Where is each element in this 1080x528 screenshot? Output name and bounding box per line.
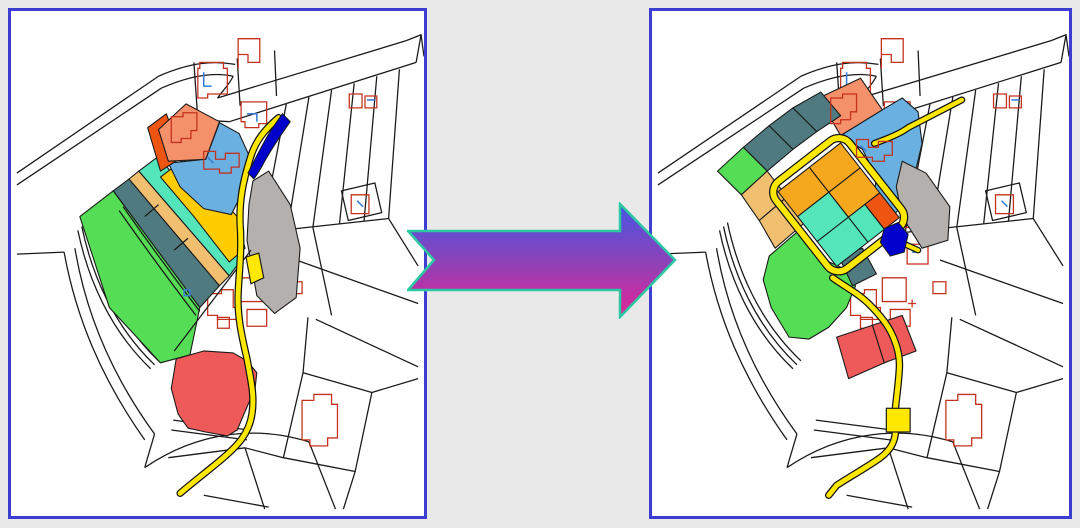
map-before-panel (8, 8, 427, 519)
red-blob-parcel (171, 351, 257, 436)
transform-arrow (407, 202, 677, 319)
map-before (11, 11, 424, 516)
parcel-gray (247, 171, 300, 313)
land-consolidation-figure: { "figure": { "type": "before-after-map-… (0, 0, 1080, 528)
right-arrow-shape (408, 204, 675, 317)
yellow-reserve-parcel (886, 408, 910, 432)
right-arrow-icon (407, 202, 677, 319)
map-after (652, 11, 1069, 516)
map-after-panel (649, 8, 1072, 519)
